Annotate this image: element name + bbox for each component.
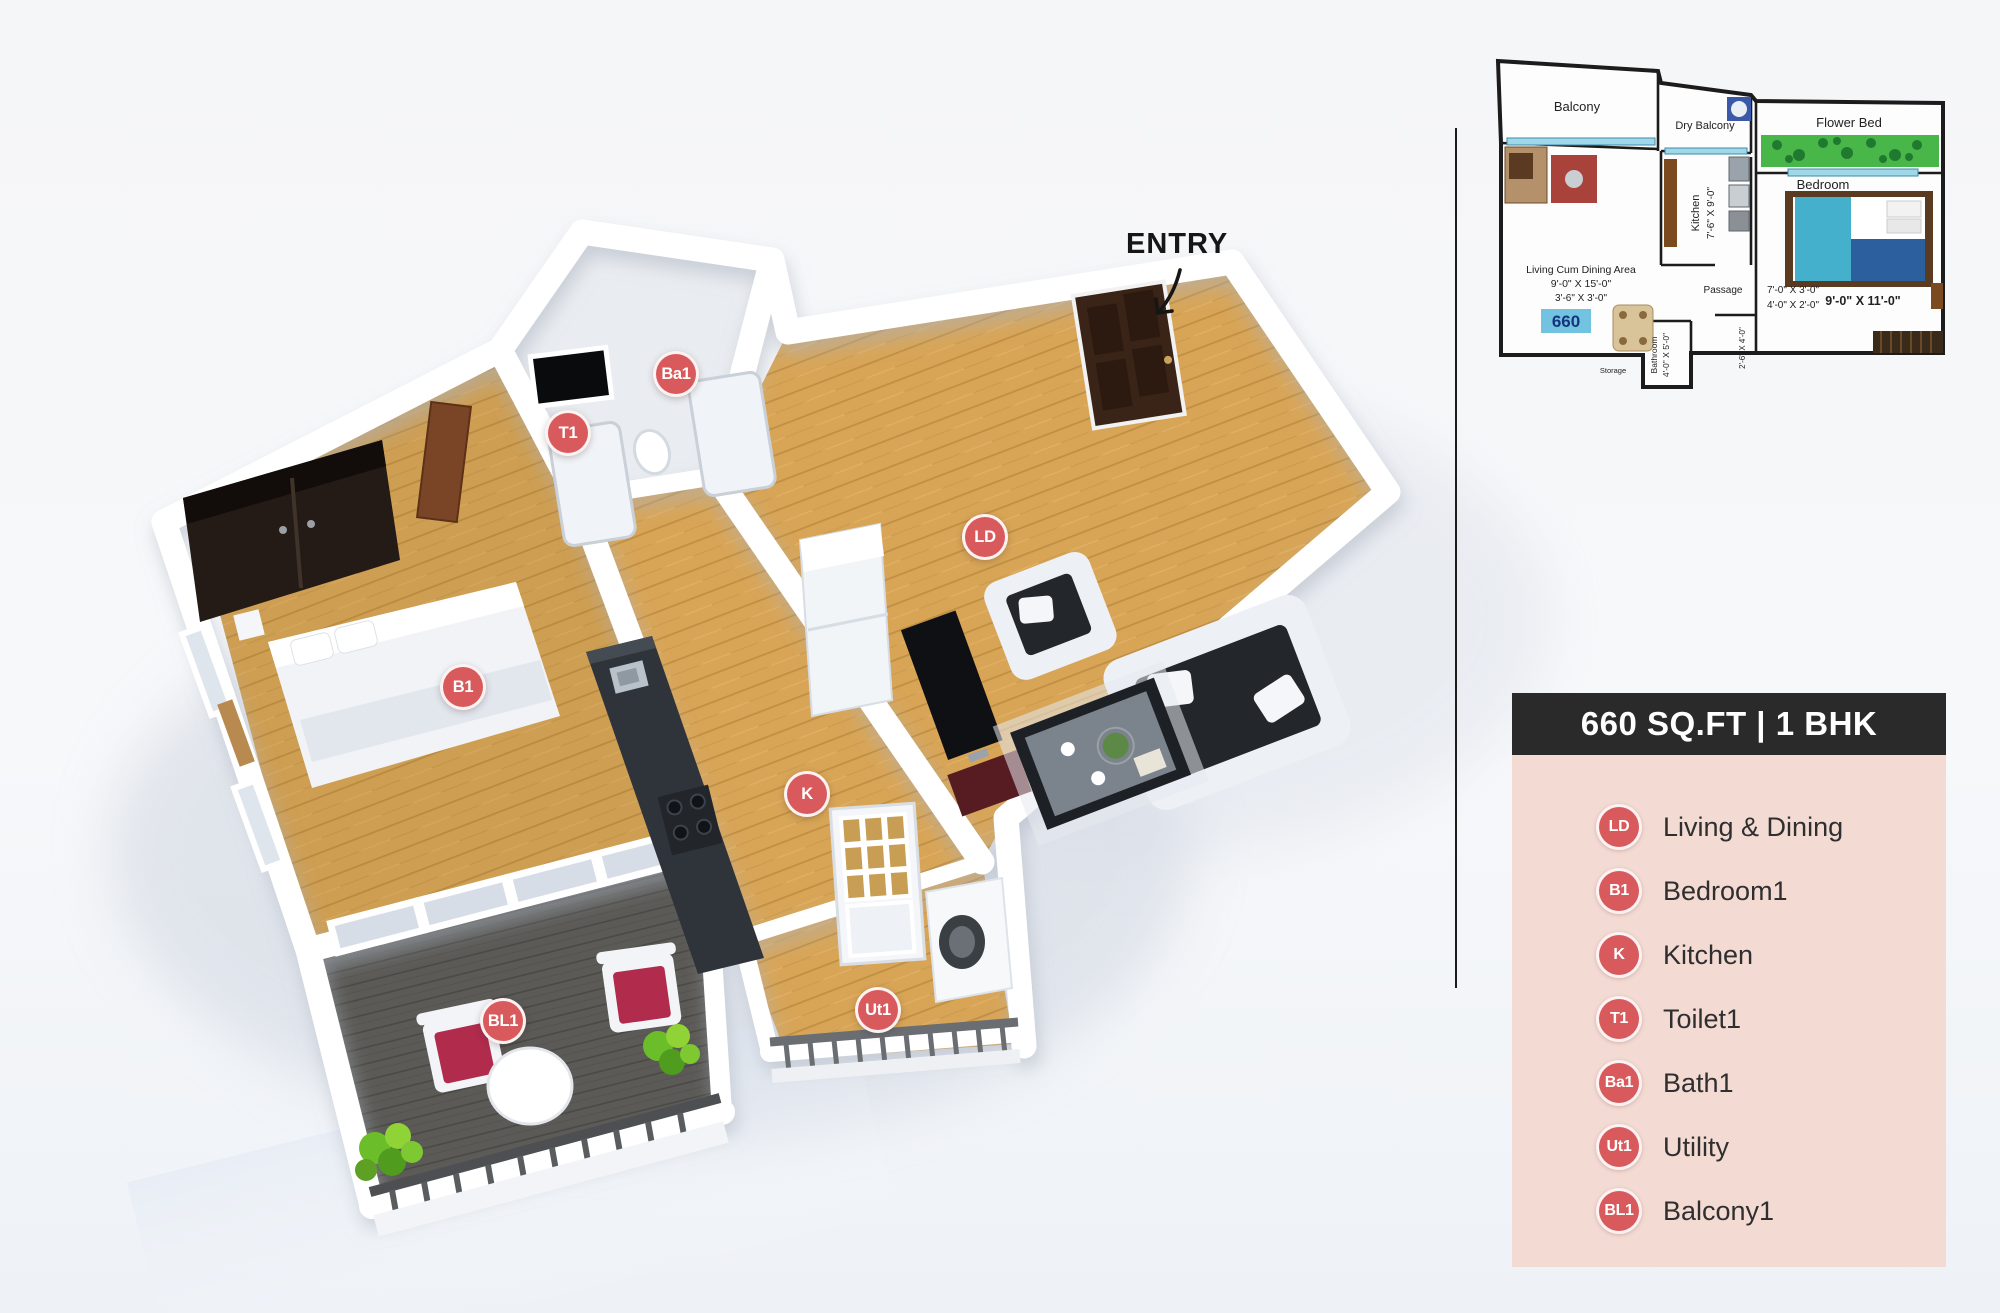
legend-badge-t1: T1	[1596, 996, 1642, 1042]
legend-label-t1: Toilet1	[1663, 1004, 1741, 1035]
miniplan-wardrobe	[1873, 331, 1943, 353]
legend-label-k: Kitchen	[1663, 940, 1753, 971]
legend-label-bl1: Balcony1	[1663, 1196, 1774, 1227]
balcony-table	[488, 1048, 572, 1124]
legend-row-balcony1: BL1 Balcony1	[1512, 1179, 1946, 1243]
label-bedroom-size: 9'-0" X 11'-0"	[1825, 294, 1901, 308]
label-dry-balcony: Dry Balcony	[1675, 120, 1735, 132]
label-toilet-size: 2'-6" X 4'-0"	[1738, 327, 1747, 369]
miniplan-appliances	[1729, 157, 1749, 231]
label-bedroom: Bedroom	[1797, 177, 1850, 192]
legend-label-ld: Living & Dining	[1663, 812, 1843, 843]
legend-badge-ld: LD	[1596, 804, 1642, 850]
utility-glass-door	[830, 803, 925, 964]
floorplan-page: ENTRY LD B1 K T1 Ba1 Ut1 BL1	[0, 0, 2000, 1313]
miniplan-sink	[1727, 97, 1751, 121]
legend-label-ba1: Bath1	[1663, 1068, 1734, 1099]
marker-living-dining: LD	[962, 514, 1008, 560]
legend-panel: 660 SQ.FT | 1 BHK LD Living & Dining B1 …	[1512, 693, 1946, 1267]
label-flower-bed: Flower Bed	[1816, 115, 1882, 130]
entry-label: ENTRY	[1126, 228, 1228, 261]
marker-balcony1: BL1	[480, 998, 526, 1044]
marker-bath1: Ba1	[653, 351, 699, 397]
legend-row-bedroom1: B1 Bedroom1	[1512, 859, 1946, 923]
label-passage: Passage	[1704, 285, 1743, 296]
label-balcony: Balcony	[1554, 99, 1601, 114]
miniplan-kitchen-counter	[1664, 159, 1677, 247]
legend-row-utility: Ut1 Utility	[1512, 1115, 1946, 1179]
washing-machine	[926, 878, 1012, 1002]
label-living-size: 9'-0" X 15'-0"	[1551, 278, 1612, 290]
vertical-divider	[1455, 128, 1457, 988]
legend-label-ut1: Utility	[1663, 1132, 1729, 1163]
legend-row-kitchen: K Kitchen	[1512, 923, 1946, 987]
miniplan-2d: 660 Balcony Dry Balcony Flower Bed Bedro…	[1493, 53, 1953, 393]
legend-body: LD Living & Dining B1 Bedroom1 K Kitchen…	[1512, 755, 1946, 1267]
legend-label-b1: Bedroom1	[1663, 876, 1788, 907]
label-storage: Storage	[1600, 366, 1626, 375]
marker-toilet1: T1	[545, 410, 591, 456]
marker-utility: Ut1	[855, 987, 901, 1033]
label-bathroom: Bathroom	[1649, 337, 1659, 374]
legend-badge-b1: B1	[1596, 868, 1642, 914]
marker-bedroom1: B1	[440, 664, 486, 710]
label-passage-size2: 4'-0" X 2'-0"	[1767, 300, 1820, 311]
bathroom-mirror	[530, 348, 612, 407]
legend-row-toilet1: T1 Toilet1	[1512, 987, 1946, 1051]
label-bathroom-size: 4'-0" X 5'-0"	[1661, 333, 1671, 377]
label-living-size2: 3'-6" X 3'-0"	[1555, 293, 1608, 304]
entry-arrow-icon	[1142, 266, 1192, 324]
miniplan-flowerbed	[1761, 135, 1939, 167]
legend-header: 660 SQ.FT | 1 BHK	[1512, 693, 1946, 755]
legend-badge-ut1: Ut1	[1596, 1124, 1642, 1170]
miniplan-area-badge-text: 660	[1552, 312, 1580, 331]
legend-row-living-dining: LD Living & Dining	[1512, 795, 1946, 859]
label-passage-size: 7'-0" X 3'-0"	[1767, 285, 1820, 296]
miniplan-area-badge: 660	[1541, 309, 1591, 333]
legend-badge-ba1: Ba1	[1596, 1060, 1642, 1106]
label-kitchen-size: 7'-6" X 9'-0"	[1706, 187, 1717, 240]
label-kitchen: Kitchen	[1690, 195, 1702, 232]
marker-kitchen: K	[784, 771, 830, 817]
legend-badge-bl1: BL1	[1596, 1188, 1642, 1234]
legend-row-bath1: Ba1 Bath1	[1512, 1051, 1946, 1115]
fridge-unit	[800, 524, 892, 716]
legend-badge-k: K	[1596, 932, 1642, 978]
label-living: Living Cum Dining Area	[1526, 264, 1636, 276]
